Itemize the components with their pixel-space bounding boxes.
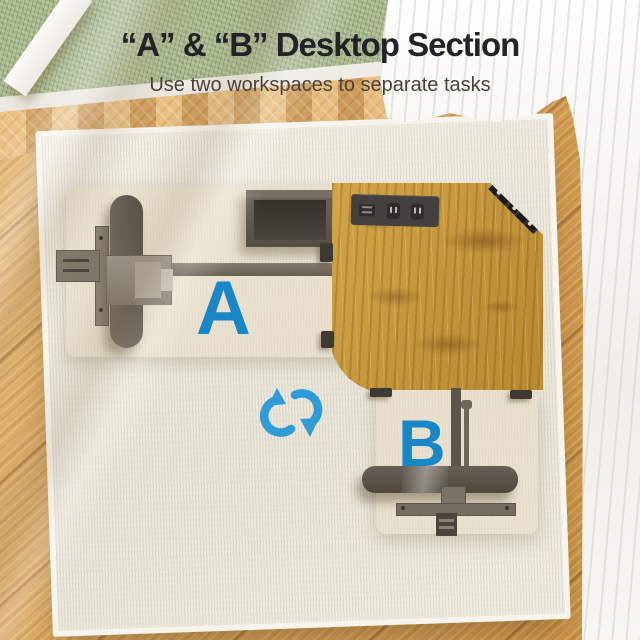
screw-hole (505, 506, 509, 510)
motor-housing (135, 262, 161, 298)
clamp-slot (439, 526, 454, 529)
screw-hole (99, 236, 103, 240)
clamp-slot (63, 269, 89, 272)
wood-desktop (332, 183, 543, 390)
section-a-label: A (196, 271, 249, 347)
cable-hook-b (461, 400, 472, 409)
edge-bracket (510, 390, 532, 399)
usb-ports-icon (359, 204, 375, 216)
power-outlet-icon (387, 203, 400, 219)
lift-motor-a (106, 255, 172, 305)
power-outlet-icon (411, 203, 424, 219)
edge-bracket (370, 388, 392, 397)
under-desk-storage-tray (246, 190, 334, 247)
tray-edge (246, 190, 334, 198)
power-strip (351, 194, 440, 227)
screw-hole (401, 506, 405, 510)
clamp-slot (63, 259, 89, 262)
tray-interior (254, 200, 326, 240)
frame-clamp-b (436, 513, 457, 536)
page-subtitle: Use two workspaces to separate tasks (0, 74, 640, 97)
edge-bracket (320, 243, 333, 262)
screw-hole (99, 308, 103, 312)
desk-product-infographic: A B “A” & “B” Desktop Section Use two wo… (0, 0, 640, 640)
swap-arrows-icon (256, 383, 328, 441)
page-title: “A” & “B” Desktop Section (0, 26, 640, 64)
lift-rod-b (464, 404, 469, 470)
motor-cap (161, 269, 173, 291)
clamp-slot (439, 519, 454, 522)
edge-bracket (321, 331, 334, 348)
frame-clamp-a (56, 250, 100, 282)
section-b-label: B (398, 410, 446, 476)
